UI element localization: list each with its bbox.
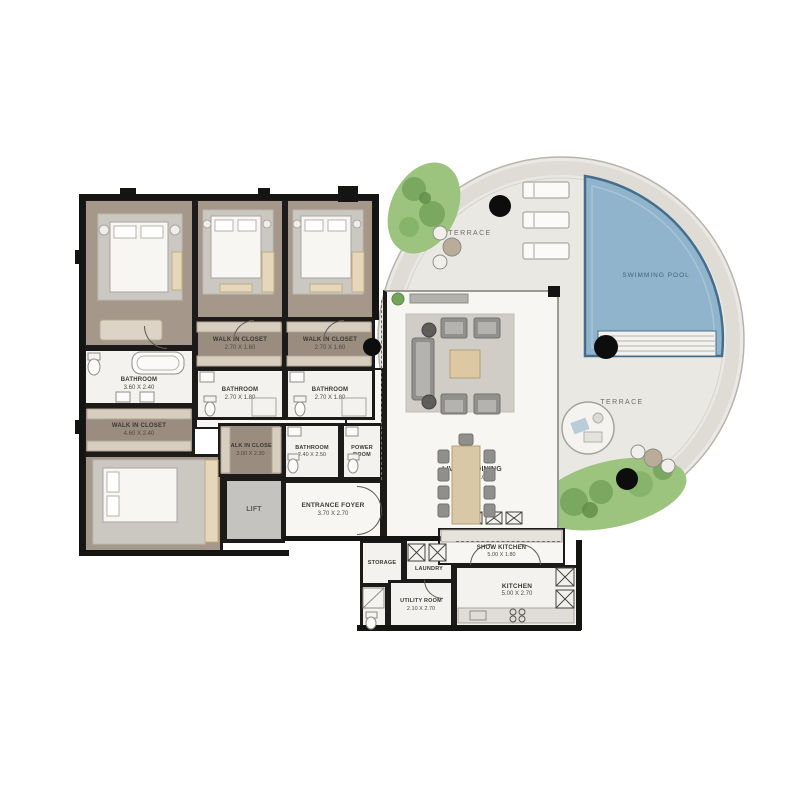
- room-master-bedroom: MASTER BEDROOM4.20 X 5.20: [83, 198, 195, 348]
- room-power-room: POWER ROOM: [341, 423, 383, 480]
- swimming-pool-label: SWIMMING POOL: [608, 272, 704, 279]
- floor-plan-canvas: TERRACE TERRACE SWIMMING POOL MASTER BED…: [0, 0, 800, 800]
- sun-loungers: [523, 182, 569, 259]
- threshold-living-left: [381, 300, 382, 480]
- room-bedroom-2: BEDROOM 24.00 X 4.60: [285, 198, 375, 320]
- room-living-dining: LIVING & DINING8.60 X 11.00: [383, 290, 559, 540]
- room-utility: UTILITY ROOM2.10 X 2.70: [388, 580, 454, 630]
- wall-pilaster-2: [258, 188, 270, 197]
- terrace-upper-label: TERRACE: [438, 230, 502, 237]
- round-daybed: [562, 402, 614, 454]
- terrace-lower-label: TERRACE: [590, 399, 654, 406]
- wall-pilaster-3: [338, 186, 358, 202]
- wall-bedroom2-right: [373, 194, 379, 320]
- wall-left: [79, 194, 85, 556]
- room-show-kitchen: SHOW KITCHEN5.00 X 1.80: [438, 528, 565, 565]
- wall-corner-post: [548, 286, 560, 297]
- room-bedroom-3: BEDROOM 36.10 X 3.95: [83, 454, 223, 554]
- wall-pilaster-5: [75, 420, 84, 434]
- room-walkin-closet-3: WALK IN CLOSET3.00 X 2.30: [218, 423, 283, 477]
- room-bathroom-1: BATHROOM2.70 X 1.80: [195, 368, 285, 420]
- room-bathroom-2: BATHROOM2.70 X 1.80: [285, 368, 375, 420]
- wall-bedroom3-bottom: [79, 550, 289, 556]
- room-kitchen: KITCHEN5.00 X 2.70: [454, 565, 580, 628]
- threshold-living-kitchen: [456, 541, 560, 542]
- wall-pilaster-4: [75, 250, 84, 264]
- wall-kitchen-right: [576, 540, 582, 630]
- wall-kitchen-bottom: [357, 625, 581, 631]
- room-master-bathroom: BATHROOM3.60 X 2.40: [83, 348, 195, 406]
- room-master-walkin-closet: WALK IN CLOSET4.60 X 2.40: [83, 406, 195, 454]
- room-lift: LIFT: [223, 477, 285, 543]
- room-bedroom-1: BEDROOM 14.00 X 4.60: [195, 198, 285, 320]
- room-small-bathroom: [360, 584, 388, 630]
- wall-pilaster-1: [120, 188, 136, 197]
- room-bathroom-middle: BATHROOM2.40 X 2.50: [283, 423, 341, 480]
- wall-foyer-bottom: [283, 536, 443, 541]
